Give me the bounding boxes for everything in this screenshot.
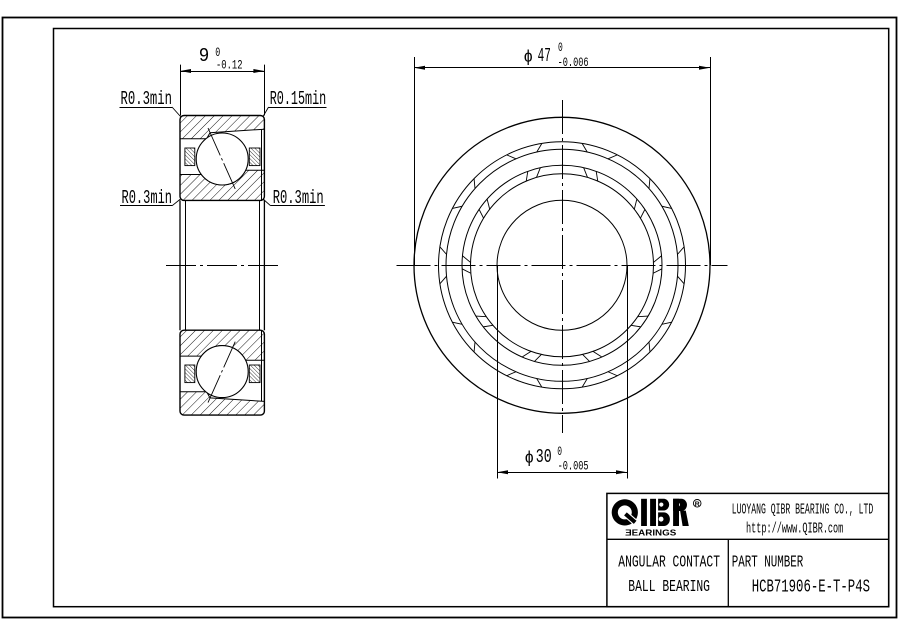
svg-text:ϕ: ϕ	[525, 450, 535, 469]
svg-text:-0.005: -0.005	[558, 460, 589, 474]
svg-text:30: 30	[536, 446, 552, 468]
svg-text:R: R	[695, 501, 700, 508]
svg-text:-0.006: -0.006	[558, 56, 589, 70]
svg-text:ƎEARINGS: ƎEARINGS	[625, 527, 677, 537]
svg-text:ANGULAR CONTACT: ANGULAR CONTACT	[618, 553, 720, 572]
svg-text:LUOYANG QIBR BEARING CO., LTD: LUOYANG QIBR BEARING CO., LTD	[732, 502, 874, 518]
svg-text:-0.12: -0.12	[216, 59, 243, 73]
svg-text:R0.3min: R0.3min	[121, 88, 173, 110]
svg-text:PART NUMBER: PART NUMBER	[732, 553, 804, 572]
svg-text:0: 0	[557, 445, 562, 459]
svg-text:http://www.QIBR.com: http://www.QIBR.com	[746, 521, 843, 537]
svg-text:BALL BEARING: BALL BEARING	[628, 577, 710, 596]
svg-text:9: 9	[199, 45, 210, 67]
svg-text:0: 0	[558, 41, 563, 55]
svg-text:47: 47	[538, 45, 551, 67]
svg-text:R0.15min: R0.15min	[270, 88, 327, 110]
svg-text:ϕ: ϕ	[524, 49, 534, 68]
svg-text:HCB71906-E-T-P4S: HCB71906-E-T-P4S	[752, 577, 870, 597]
